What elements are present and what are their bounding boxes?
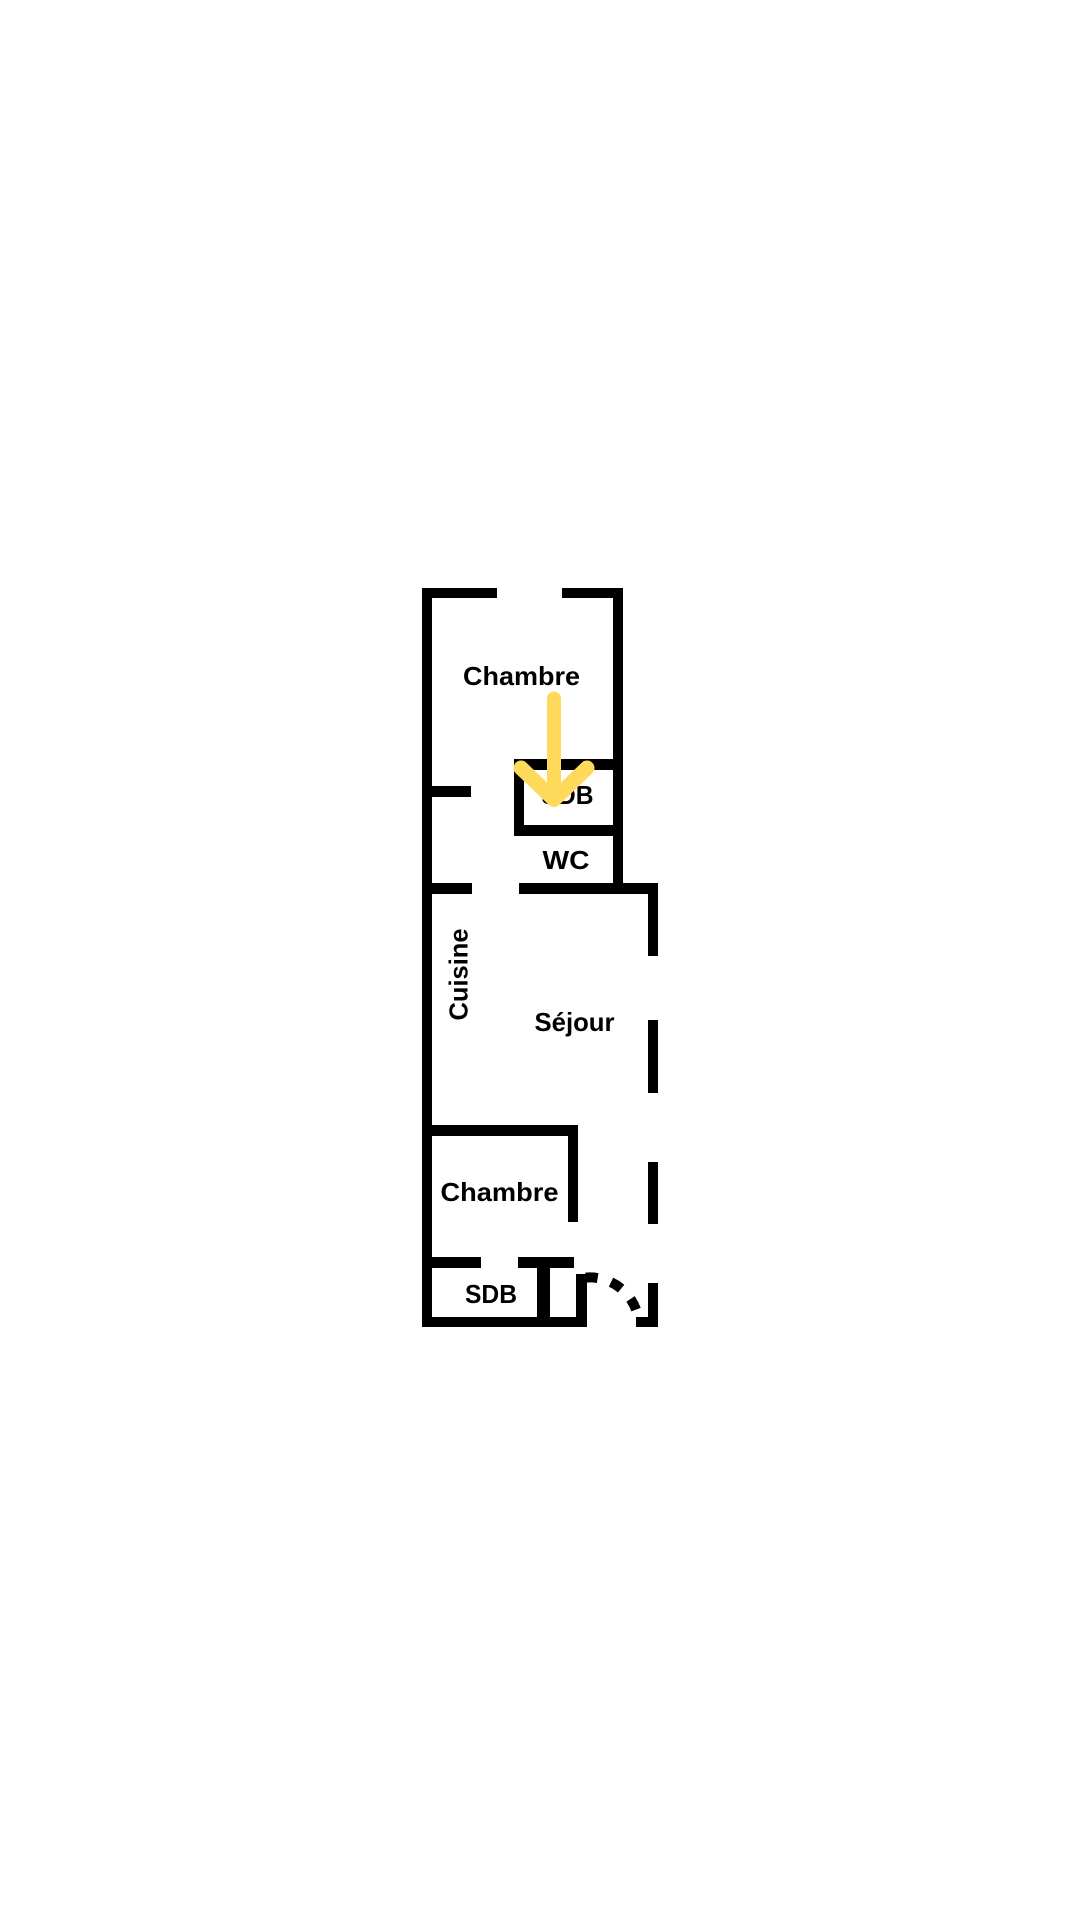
svg-text:Séjour: Séjour bbox=[535, 1007, 615, 1037]
svg-text:WC: WC bbox=[543, 845, 590, 875]
svg-text:Chambre: Chambre bbox=[441, 1177, 559, 1207]
svg-text:Chambre: Chambre bbox=[463, 661, 580, 691]
svg-text:SDB: SDB bbox=[465, 1279, 517, 1309]
svg-text:Cuisine: Cuisine bbox=[444, 929, 474, 1021]
